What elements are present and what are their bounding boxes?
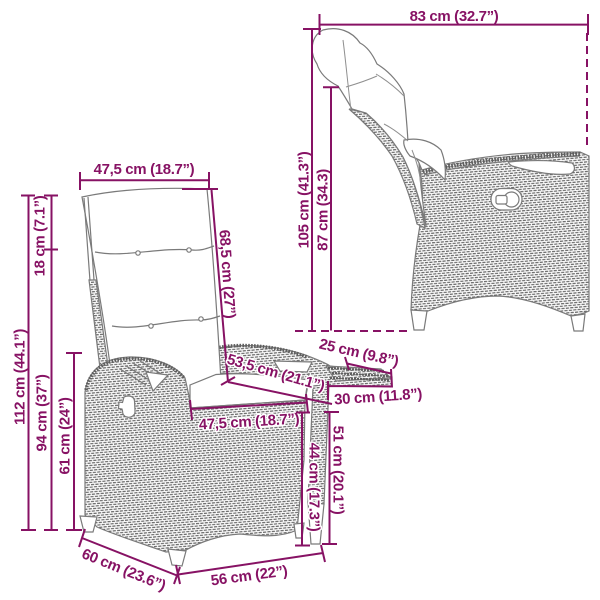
svg-text:87 cm (34.3): 87 cm (34.3) <box>315 169 332 251</box>
svg-text:83 cm (32.7”): 83 cm (32.7”) <box>410 8 499 25</box>
svg-text:112 cm (44.1”): 112 cm (44.1”) <box>12 329 29 425</box>
svg-text:18 cm (7.1”): 18 cm (7.1”) <box>32 195 49 276</box>
svg-text:51 cm (20.1”): 51 cm (20.1”) <box>330 426 347 515</box>
svg-text:30 cm (11.8”): 30 cm (11.8”) <box>334 385 423 408</box>
svg-text:44 cm (17.3”): 44 cm (17.3”) <box>306 443 323 532</box>
svg-text:60 cm (23.6”): 60 cm (23.6”) <box>79 545 168 594</box>
svg-text:105 cm (41.3”): 105 cm (41.3”) <box>296 151 313 248</box>
svg-text:56 cm (22”): 56 cm (22”) <box>210 562 289 589</box>
svg-text:94 cm (37”): 94 cm (37”) <box>34 374 51 451</box>
svg-text:47,5 cm (18.7”): 47,5 cm (18.7”) <box>94 161 195 178</box>
svg-text:61 cm (24”): 61 cm (24”) <box>57 397 74 474</box>
